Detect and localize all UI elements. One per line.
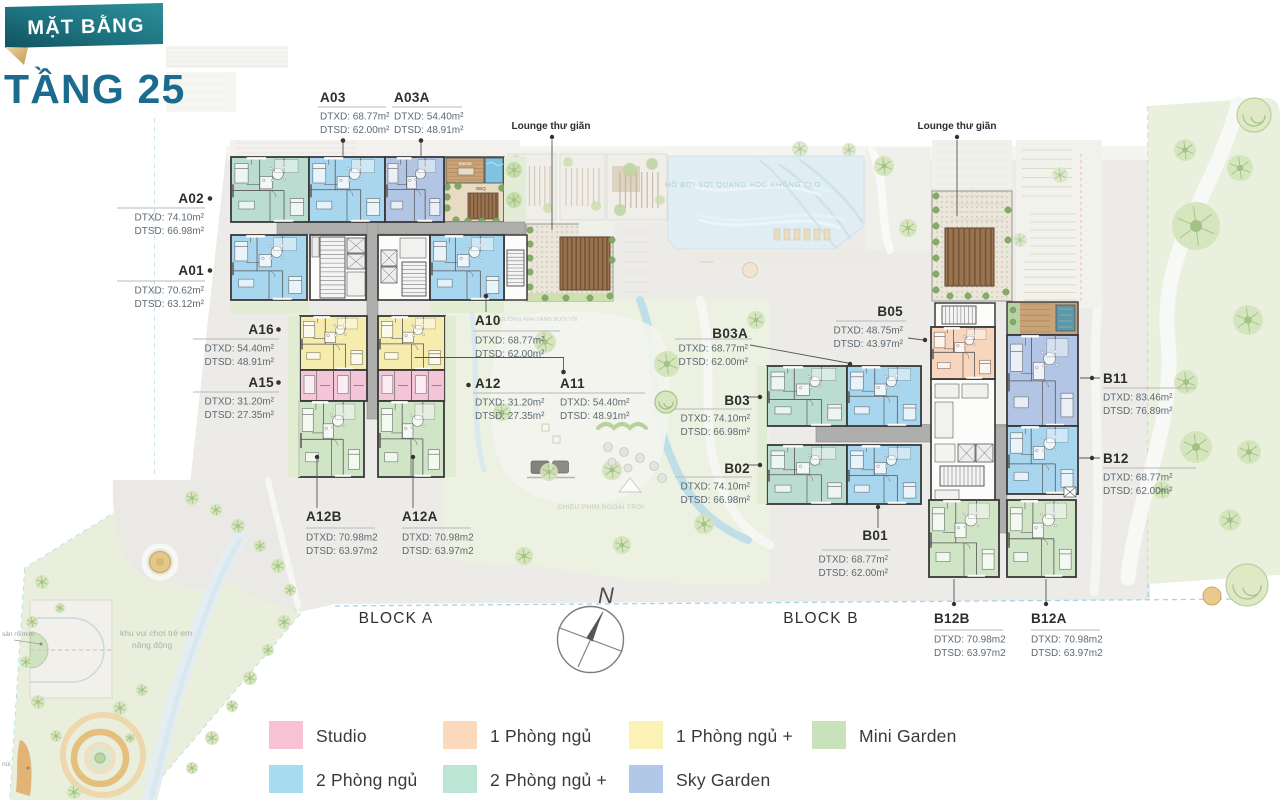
svg-text:TẦNG 25: TẦNG 25 [4,66,186,112]
svg-text:núi: núi [2,761,11,768]
svg-text:DTXD: 74.10m²: DTXD: 74.10m² [681,482,751,493]
svg-text:DTXD: 48.75m²: DTXD: 48.75m² [834,326,904,337]
svg-text:DTSD: 43.97m²: DTSD: 43.97m² [834,339,904,350]
svg-text:DTSD: 63.97m2: DTSD: 63.97m2 [402,546,474,557]
svg-text:A16: A16 [248,322,274,337]
svg-text:ĐƯỜNG ÁNH SÁNG BUỔI TỐI: ĐƯỜNG ÁNH SÁNG BUỔI TỐI [500,316,578,323]
svg-text:DTSD: 48.91m²: DTSD: 48.91m² [560,411,630,422]
svg-text:DTXD: 70.62m²: DTXD: 70.62m² [135,286,205,297]
svg-text:sân rổ mini: sân rổ mini [2,630,34,638]
svg-text:DTSD: 63.12m²: DTSD: 63.12m² [135,299,205,310]
svg-text:B02: B02 [724,461,750,476]
svg-text:B11: B11 [1103,371,1128,386]
svg-text:DTSD: 66.98m²: DTSD: 66.98m² [681,495,751,506]
svg-text:DTSD: 62.00m²: DTSD: 62.00m² [475,349,545,360]
svg-text:A11: A11 [560,376,585,391]
svg-text:A03: A03 [320,90,346,105]
svg-text:DTXD: 68.77m²: DTXD: 68.77m² [475,336,545,347]
svg-text:A02: A02 [178,191,204,206]
svg-text:B03: B03 [724,393,750,408]
svg-text:DTSD: 27.35m²: DTSD: 27.35m² [475,411,545,422]
svg-text:DTSD: 48.91m²: DTSD: 48.91m² [394,125,464,136]
svg-text:DTSD: 63.97m2: DTSD: 63.97m2 [1031,648,1103,659]
svg-text:Mini Garden: Mini Garden [859,726,957,746]
svg-text:B12A: B12A [1031,611,1067,626]
svg-text:A03A: A03A [394,90,430,105]
svg-text:Studio: Studio [316,726,367,746]
svg-text:DTSD: 48.91m²: DTSD: 48.91m² [205,357,275,368]
svg-text:DTXD: 70.98m2: DTXD: 70.98m2 [934,635,1006,646]
svg-text:Sky Garden: Sky Garden [676,770,770,790]
svg-text:Lounge thư giãn: Lounge thư giãn [512,121,591,132]
svg-text:DTXD: 68.77m²: DTXD: 68.77m² [819,555,889,566]
svg-text:BBQ: BBQ [476,186,486,191]
svg-text:DTXD: 74.10m²: DTXD: 74.10m² [135,213,205,224]
svg-text:BLOCK A: BLOCK A [359,610,434,627]
svg-text:2 Phòng ngủ +: 2 Phòng ngủ + [490,770,607,790]
svg-text:Sauna: Sauna [458,161,472,166]
svg-text:DTXD: 70.98m2: DTXD: 70.98m2 [402,533,474,544]
svg-text:DTXD: 70.98m2: DTXD: 70.98m2 [306,533,378,544]
svg-text:DTXD: 31.20m²: DTXD: 31.20m² [475,398,545,409]
svg-text:DTXD: 31.20m²: DTXD: 31.20m² [205,397,275,408]
svg-text:A10: A10 [475,313,501,328]
svg-text:DTSD: 76.89m²: DTSD: 76.89m² [1103,406,1173,417]
svg-text:DTSD: 62.00m²: DTSD: 62.00m² [679,357,749,368]
svg-text:1 Phòng ngủ: 1 Phòng ngủ [490,726,591,746]
svg-text:MẶT BẰNG: MẶT BẰNG [27,13,145,40]
svg-text:DTXD: 54.40m²: DTXD: 54.40m² [205,344,275,355]
svg-text:DTXD: 54.40m²: DTXD: 54.40m² [394,112,464,123]
svg-text:A12: A12 [475,376,501,391]
svg-text:DTSD: 66.98m²: DTSD: 66.98m² [135,226,205,237]
svg-text:DTXD: 83.46m²: DTXD: 83.46m² [1103,393,1173,404]
svg-text:DTSD: 62.00m²: DTSD: 62.00m² [1103,486,1173,497]
svg-text:Lounge thư giãn: Lounge thư giãn [918,121,997,132]
svg-text:A12A: A12A [402,509,438,524]
svg-text:HỒ BƠI SỢI QUANG HỌC KHÔNG CLO: HỒ BƠI SỢI QUANG HỌC KHÔNG CLO [665,179,821,189]
svg-text:DTSD: 66.98m²: DTSD: 66.98m² [681,427,751,438]
svg-text:DTSD: 62.00m²: DTSD: 62.00m² [320,125,390,136]
svg-text:DTXD: 70.98m2: DTXD: 70.98m2 [1031,635,1103,646]
svg-text:1 Phòng ngủ +: 1 Phòng ngủ + [676,726,793,746]
svg-text:DTXD: 68.77m²: DTXD: 68.77m² [679,344,749,355]
svg-text:DTSD: 27.35m²: DTSD: 27.35m² [205,410,275,421]
svg-text:BLOCK B: BLOCK B [783,610,859,627]
svg-text:DTXD: 68.77m²: DTXD: 68.77m² [1103,473,1173,484]
svg-text:DTSD: 63.97m2: DTSD: 63.97m2 [934,648,1006,659]
svg-text:B12B: B12B [934,611,970,626]
svg-text:DTXD: 74.10m²: DTXD: 74.10m² [681,414,751,425]
svg-text:B01: B01 [862,528,888,543]
svg-text:khu vui chơi trẻ em: khu vui chơi trẻ em [120,628,192,638]
svg-text:DTXD: 68.77m²: DTXD: 68.77m² [320,112,390,123]
svg-text:B05: B05 [877,304,903,319]
svg-text:N: N [598,583,614,608]
svg-text:A01: A01 [178,263,204,278]
svg-text:2 Phòng ngủ: 2 Phòng ngủ [316,770,417,790]
svg-text:A15: A15 [248,375,274,390]
svg-text:A12B: A12B [306,509,342,524]
svg-text:năng động: năng động [132,640,172,650]
svg-text:DTSD: 63.97m2: DTSD: 63.97m2 [306,546,378,557]
svg-text:DTSD: 62.00m²: DTSD: 62.00m² [819,568,889,579]
svg-text:B12: B12 [1103,451,1129,466]
svg-text:DTXD: 54.40m²: DTXD: 54.40m² [560,398,630,409]
